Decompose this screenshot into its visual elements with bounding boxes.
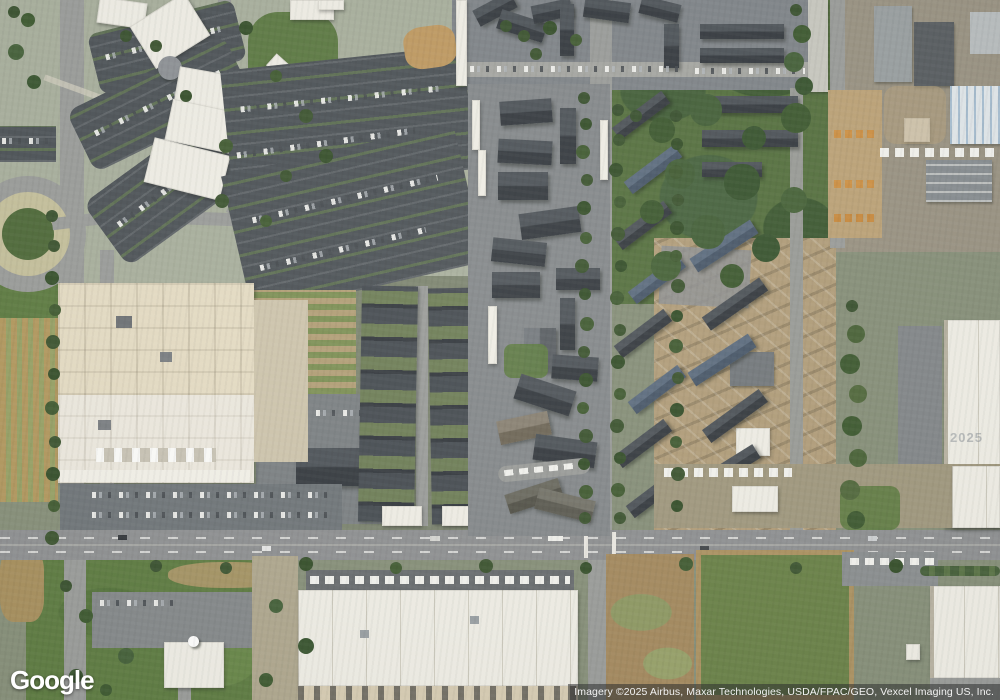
parked-car-row (695, 68, 805, 74)
trailer-row (310, 576, 570, 584)
car-on-road (262, 546, 271, 551)
green-verge (840, 486, 900, 530)
office-building (382, 506, 422, 526)
townhouse-row-column (358, 286, 418, 523)
carport-row (488, 306, 497, 364)
tree-cluster (8, 6, 20, 18)
tree-cluster (578, 92, 590, 104)
industrial-shed (732, 486, 778, 512)
dirt-field (606, 554, 694, 700)
tree-cluster (60, 580, 72, 592)
carport-row (600, 120, 608, 180)
parked-car-row (470, 66, 680, 72)
warehouse-building (808, 0, 828, 92)
apartment-building (702, 96, 798, 113)
apartment-building (497, 139, 552, 166)
attribution-text: Imagery ©2025 Airbus, Maxar Technologies… (574, 686, 994, 698)
church-steeple (188, 636, 199, 647)
lumber-stacks (834, 180, 876, 188)
garden-center-strip (60, 470, 250, 482)
rooftop-unit (470, 616, 479, 624)
hedge-row (920, 566, 1000, 576)
apartment-building (700, 48, 784, 63)
loading-docks-south (298, 686, 578, 700)
apartment-building (498, 172, 548, 200)
industrial-building-blue-roof (950, 86, 1000, 144)
rooftop-hvac-row (96, 448, 216, 462)
apartment-building (551, 354, 599, 381)
apartment-building (492, 272, 540, 298)
car-on-road (430, 536, 440, 541)
farm-rows-left (0, 318, 58, 502)
rooftop-unit (98, 420, 111, 430)
trailer-row (664, 468, 792, 477)
rooftop-unit (160, 352, 172, 362)
warehouse-dock-edge (930, 586, 934, 678)
tree-cluster (150, 560, 162, 572)
drive-strip (252, 556, 298, 700)
attribution-bar: Imagery ©2025 Airbus, Maxar Technologies… (568, 684, 1000, 700)
green-field (696, 550, 854, 700)
parked-car-row (92, 492, 330, 498)
tree-cluster (612, 104, 624, 116)
warehouse-east-roof-south (952, 466, 1000, 528)
warehouse-southeast-roof (930, 586, 1000, 678)
apartment-building (556, 268, 600, 290)
trailer-row (850, 558, 936, 565)
carport-row (456, 0, 467, 86)
apartment-building (499, 98, 553, 126)
industrial-building (970, 12, 1000, 54)
imagery-watermark: 2025 (950, 430, 983, 445)
trailer-row (880, 148, 995, 157)
townhouse-street (416, 286, 428, 526)
small-building (906, 644, 920, 660)
tree-cluster (46, 210, 58, 222)
retail-store-roof-upper (58, 283, 254, 395)
road-main-dashes-north (0, 537, 1000, 539)
industrial-building (874, 6, 912, 82)
tree-cluster (630, 110, 642, 122)
satellite-map-canvas[interactable]: 2025 Google Imagery ©2025 Airbus, Maxar … (0, 0, 1000, 700)
tree-cluster (790, 4, 802, 16)
courtyard-lawn (504, 344, 548, 378)
store-parking-south (60, 484, 342, 530)
campus-parking-small (0, 126, 56, 162)
parked-car-row (100, 600, 180, 606)
car-on-road (868, 536, 877, 541)
apartment-building (700, 24, 784, 39)
tree-cluster (846, 300, 858, 312)
road-main-centerline (0, 544, 1000, 546)
tree-cluster (120, 30, 132, 42)
industrial-building (926, 160, 992, 202)
road-center-vertical-south (588, 558, 606, 700)
apartment-building (560, 298, 575, 350)
apartment-building (664, 24, 679, 68)
rooftop-unit (116, 316, 132, 328)
apartment-building (702, 130, 798, 147)
loading-dock-east (254, 300, 308, 462)
church-building (164, 642, 224, 688)
lumber-stacks (834, 130, 876, 138)
office-building (318, 0, 344, 10)
google-logo[interactable]: Google (10, 665, 94, 696)
dirt-yard (884, 86, 946, 144)
carport-row (478, 150, 486, 196)
car-on-road (118, 535, 127, 540)
industrial-building-dark (914, 22, 954, 86)
rooftop-unit (360, 630, 369, 638)
apartment-building (560, 4, 574, 56)
apartment-building (702, 162, 762, 177)
carport-row (472, 100, 480, 150)
parked-car-row (92, 512, 330, 518)
warehouse-south-roof (298, 590, 578, 686)
tree-cluster (500, 20, 512, 32)
lumber-stacks (834, 214, 876, 222)
tree-cluster (670, 110, 682, 122)
apartment-building (560, 108, 576, 164)
parked-car-row (2, 138, 52, 144)
